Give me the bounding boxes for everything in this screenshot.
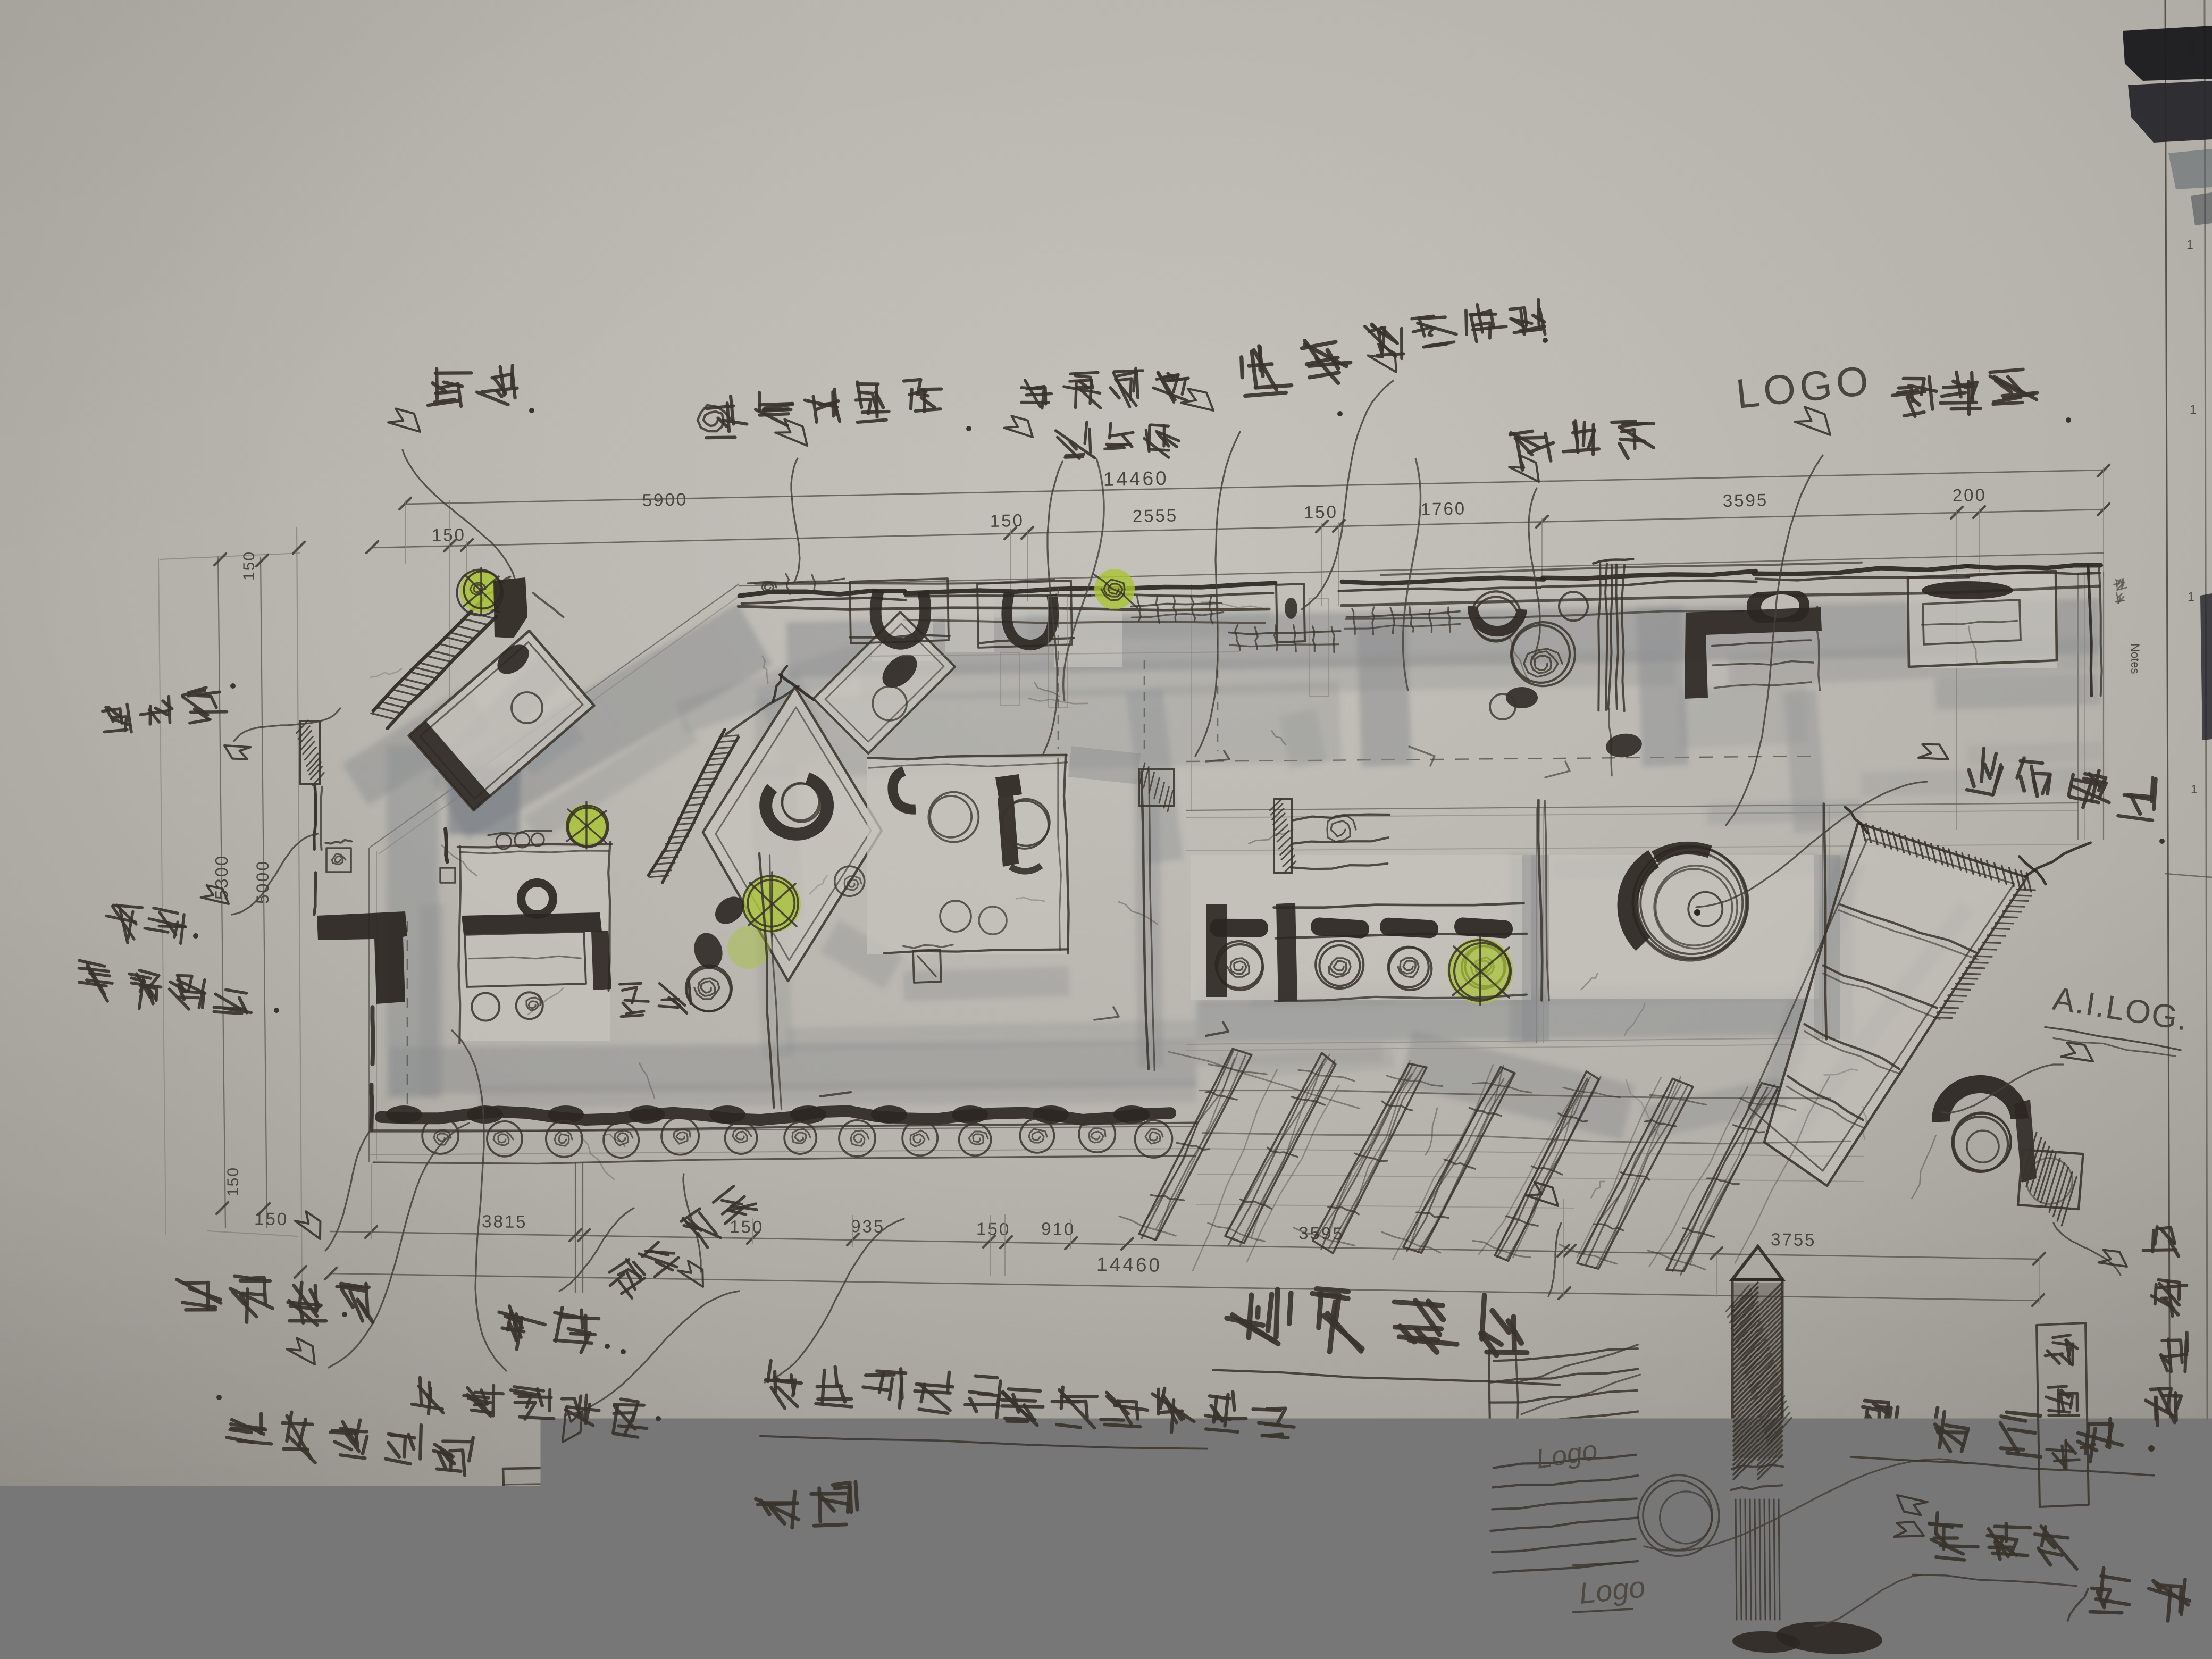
svg-text:200: 200	[1952, 485, 1987, 505]
svg-text:150: 150	[990, 510, 1024, 531]
svg-text:1760: 1760	[1420, 498, 1466, 519]
svg-text:Logo: Logo	[1578, 1570, 1647, 1610]
svg-text:150: 150	[1303, 502, 1338, 522]
svg-text:14460: 14460	[1103, 467, 1169, 490]
svg-text:3755: 3755	[1771, 1229, 1816, 1250]
svg-text:910: 910	[1041, 1219, 1076, 1239]
svg-text:150: 150	[254, 1209, 289, 1229]
svg-text:5900: 5900	[642, 489, 688, 510]
svg-text:3815: 3815	[482, 1211, 527, 1231]
svg-text:150: 150	[224, 1167, 242, 1196]
svg-text:14460: 14460	[1096, 1253, 1162, 1276]
svg-text:1: 1	[2186, 238, 2193, 252]
svg-text:Notes: Notes	[2129, 643, 2142, 674]
svg-text:2555: 2555	[1132, 505, 1178, 526]
svg-text:150: 150	[431, 525, 466, 545]
svg-text:5000: 5000	[253, 860, 272, 904]
svg-text:5300: 5300	[212, 854, 231, 900]
svg-text:3595: 3595	[1722, 490, 1768, 510]
svg-text:150: 150	[730, 1217, 764, 1237]
svg-text:150: 150	[240, 551, 258, 581]
svg-text:1: 1	[2191, 782, 2198, 796]
svg-text:1: 1	[2188, 590, 2194, 604]
svg-text:1: 1	[2190, 403, 2197, 416]
